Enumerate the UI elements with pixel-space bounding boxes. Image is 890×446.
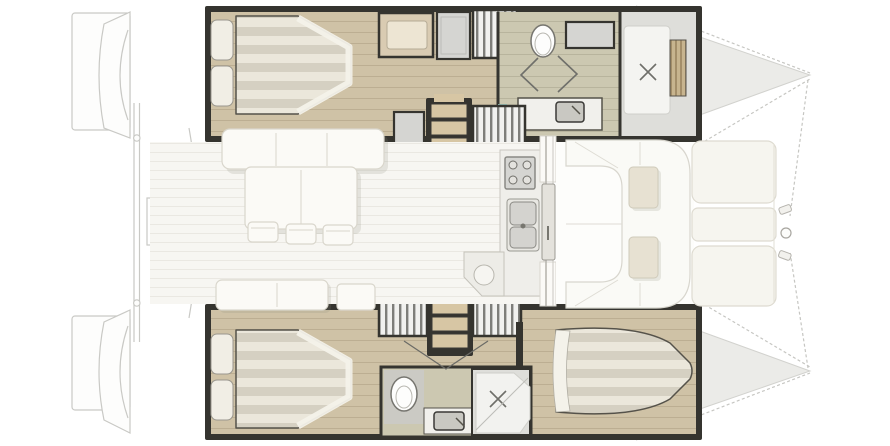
forward-sliding-door <box>540 136 556 306</box>
burner <box>523 161 531 169</box>
door-panel <box>542 184 555 260</box>
toilet-icon <box>531 25 555 57</box>
bathroom-cabinet <box>566 22 614 48</box>
steps-landing <box>434 94 464 102</box>
round-basin <box>474 265 494 285</box>
cabinet <box>437 12 470 59</box>
berth-partition <box>516 322 523 368</box>
step-tread <box>432 317 468 331</box>
step-tread <box>431 104 467 118</box>
stove-icon <box>505 157 535 189</box>
pillow <box>211 334 233 374</box>
burner <box>509 176 517 184</box>
door-wall-top <box>540 136 556 182</box>
cockpit-table <box>629 167 658 208</box>
port-bathroom <box>498 12 696 136</box>
port-stern-cap <box>99 12 130 138</box>
saloon-bench <box>216 280 328 310</box>
floorplan-drawing <box>0 0 890 446</box>
forestay-fitting <box>781 228 791 238</box>
cockpit-table <box>629 237 658 278</box>
saloon <box>150 129 556 313</box>
sunpad <box>692 246 776 306</box>
stool <box>323 225 353 245</box>
sink-icon <box>556 102 584 122</box>
side-table <box>337 284 375 310</box>
bow-bridle-port <box>790 80 808 216</box>
bow-cleat <box>778 250 792 261</box>
step-tread <box>432 334 468 348</box>
sunpad-strip <box>692 208 776 241</box>
bow-cleat <box>778 204 792 215</box>
saloon-sofa <box>222 129 384 169</box>
toilet-icon <box>391 377 417 411</box>
stool <box>248 222 278 242</box>
burner <box>523 176 531 184</box>
davit-fitting-starboard <box>134 300 140 306</box>
foredeck <box>692 80 808 368</box>
pillow <box>211 380 233 420</box>
pillow <box>211 20 233 60</box>
sink-icon <box>510 227 536 248</box>
step-tread <box>431 121 467 135</box>
door-wall-bottom <box>540 262 556 306</box>
faucet-icon <box>521 224 526 229</box>
pillow <box>211 66 233 106</box>
catamaran-floorplan <box>0 0 890 446</box>
shower-bench-slats <box>670 40 686 96</box>
stool <box>286 224 316 244</box>
bow-bridle-starboard <box>790 252 808 368</box>
sunpad <box>692 141 776 203</box>
burner <box>509 161 517 169</box>
sink-icon <box>510 202 536 225</box>
forward-cockpit <box>556 140 694 308</box>
starboard-stern-cap <box>99 310 130 433</box>
davit-fitting-port <box>134 135 140 141</box>
vanity-top <box>387 21 427 49</box>
starboard-bow-deck <box>697 330 810 410</box>
port-bow-deck <box>697 36 810 116</box>
